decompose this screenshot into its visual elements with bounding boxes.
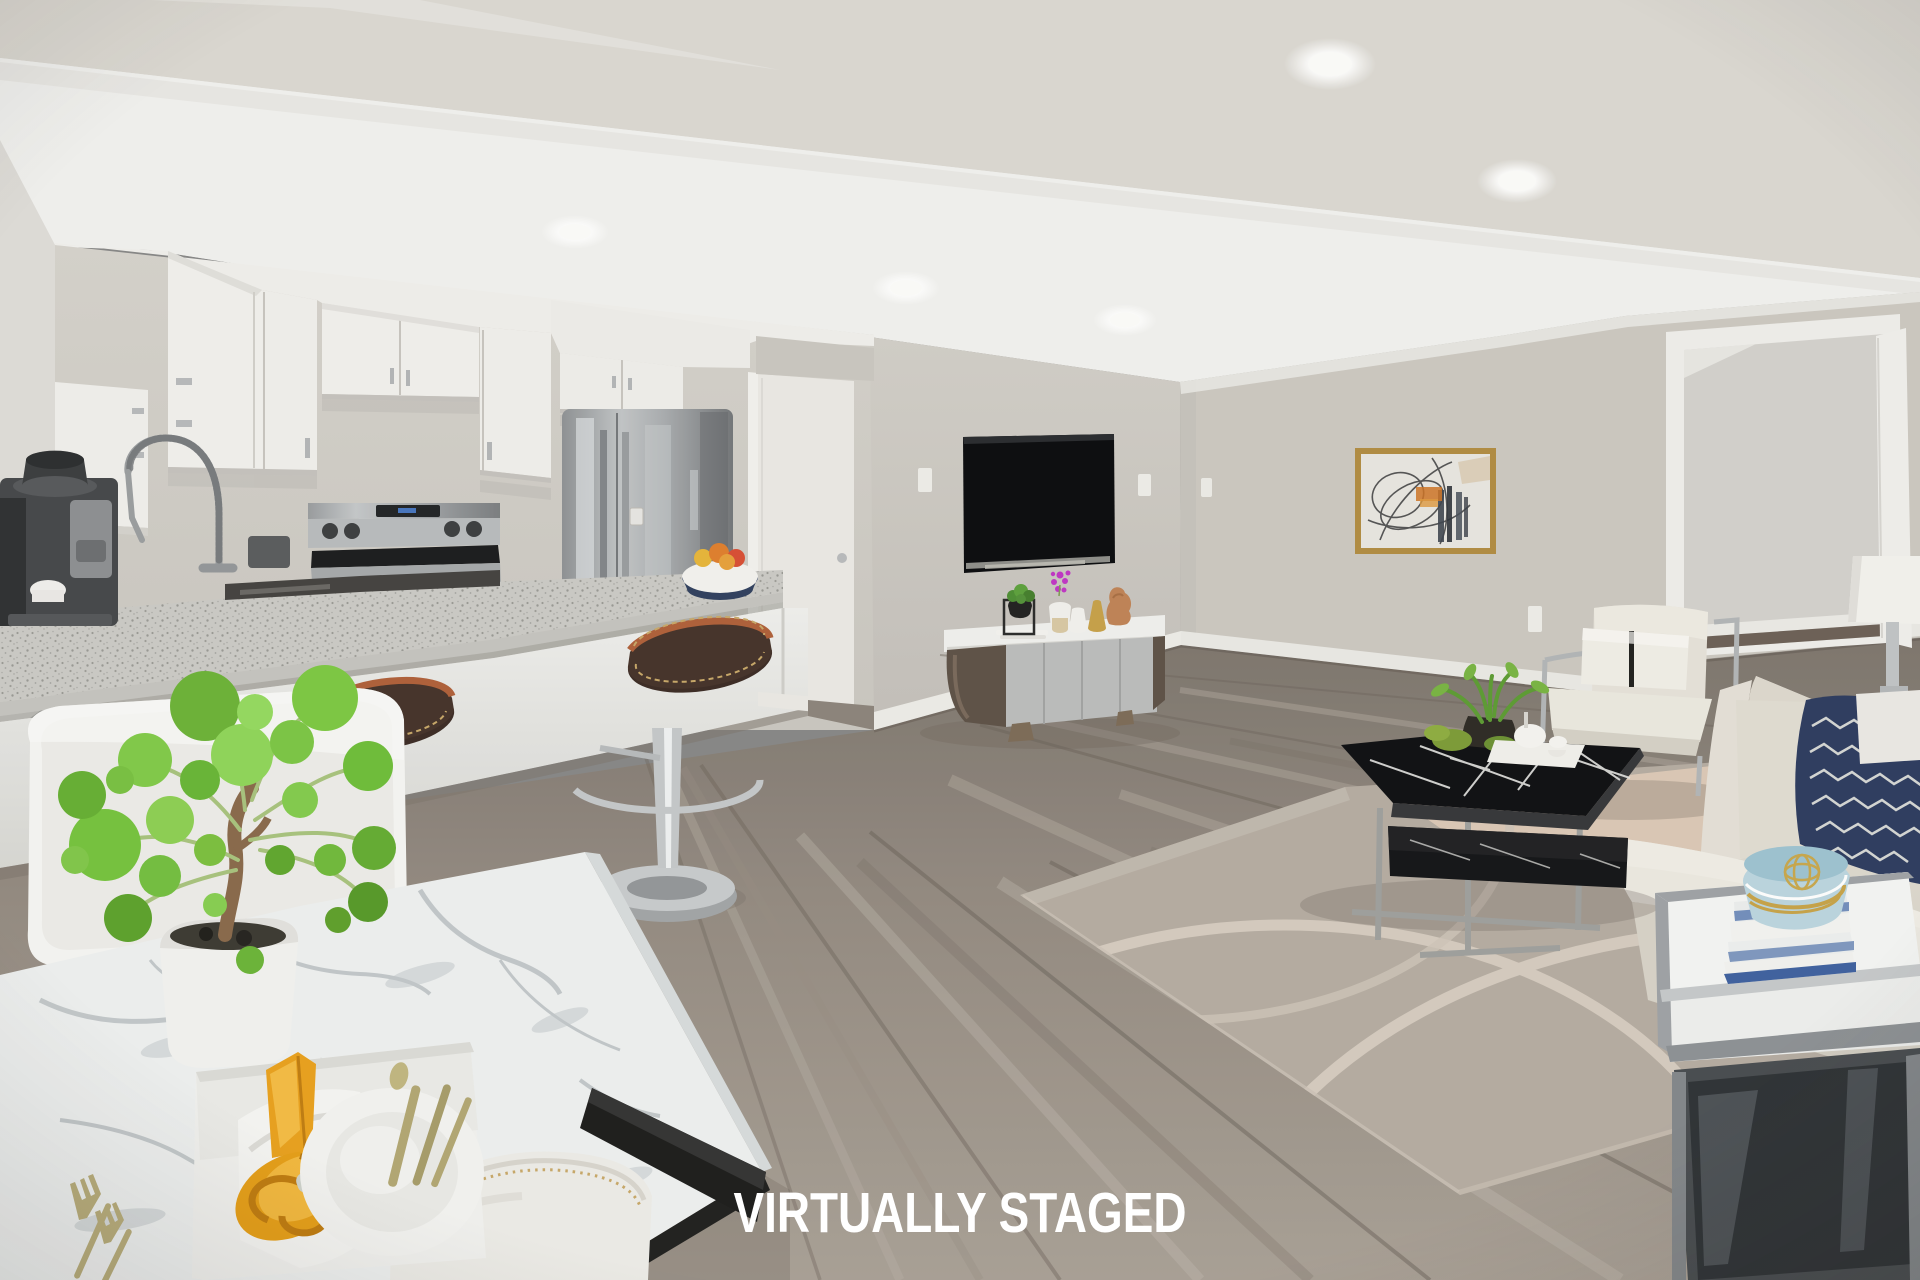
svg-text:VIRTUALLY STAGED: VIRTUALLY STAGED — [734, 1181, 1187, 1245]
